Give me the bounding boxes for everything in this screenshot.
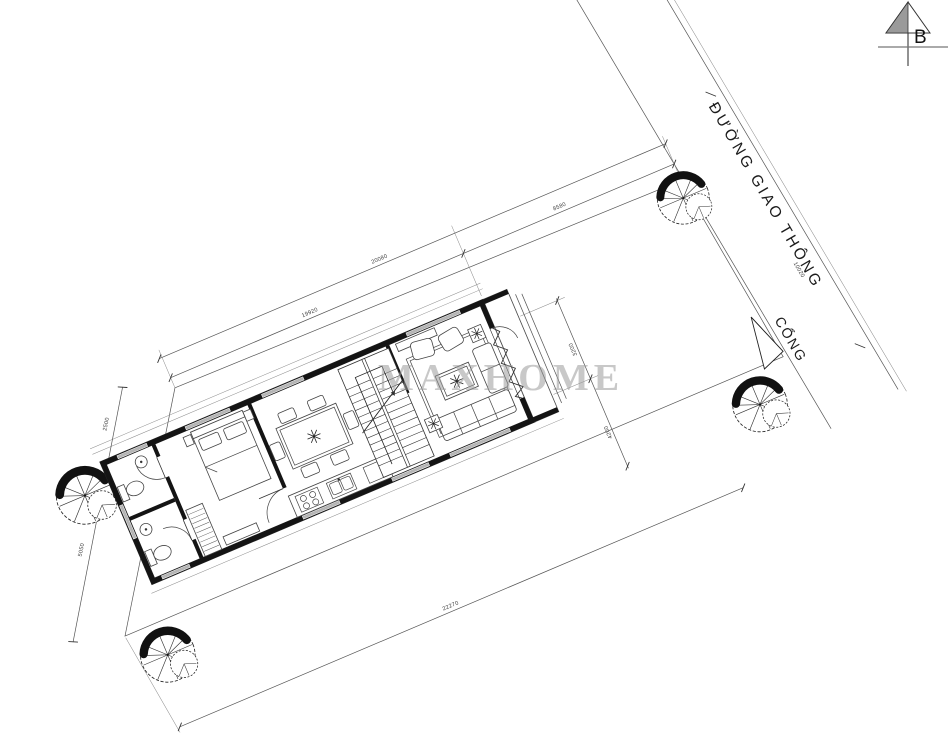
north-arrow-icon: B: [878, 2, 948, 66]
tree-icon: [649, 164, 718, 233]
site-plan-sheet: B ĐƯỜNG GIAO THÔNG 10020 CỔNG: [0, 0, 949, 751]
plan-canvas: B ĐƯỜNG GIAO THÔNG 10020 CỔNG: [0, 0, 949, 751]
dim-bottom-site: 22270: [442, 600, 460, 612]
road-name-label: ĐƯỜNG GIAO THÔNG: [705, 100, 826, 292]
tree-icon: [132, 619, 204, 692]
compass-north-label: B: [914, 27, 927, 48]
dim-left-upper: 2500: [102, 417, 110, 432]
building: [100, 285, 570, 585]
dim-top-building: 19920: [301, 307, 319, 319]
dim-front-lower: 4200: [603, 425, 614, 440]
tree-icon: [724, 369, 796, 442]
watermark-logo: MAXHOME: [378, 357, 624, 399]
dim-top-road-frontage: 8580: [552, 202, 567, 213]
dim-left-lower: 5050: [78, 543, 86, 558]
gate-label: CỔNG: [772, 313, 812, 365]
dim-front-upper: 3200: [568, 342, 579, 357]
dim-top-site: 20080: [371, 254, 389, 266]
